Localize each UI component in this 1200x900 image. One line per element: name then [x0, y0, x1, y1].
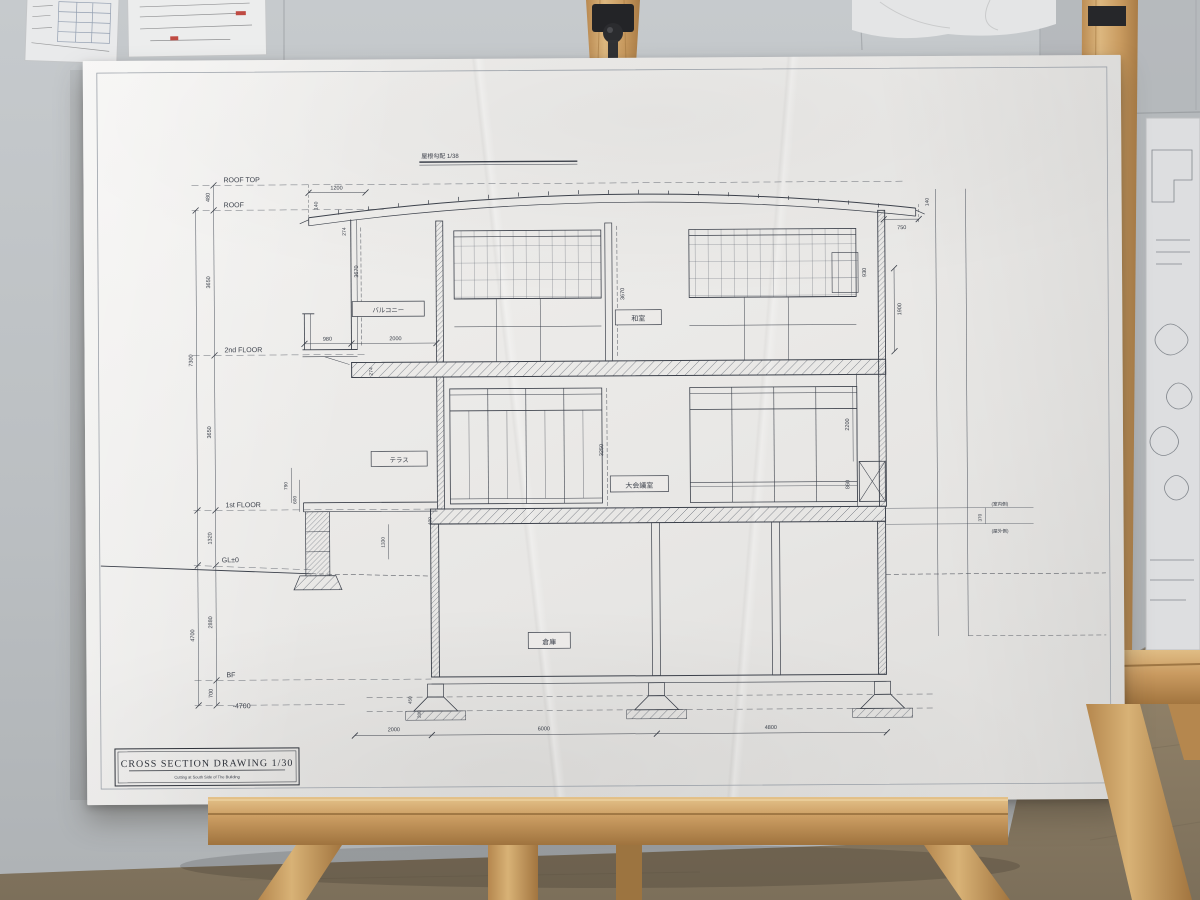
- dim-860: 860: [845, 480, 851, 489]
- dim-minus4700: -4700: [233, 703, 251, 710]
- title-block: CROSS SECTION DRAWING 1/30 Cutting at So…: [115, 748, 299, 786]
- roof-note-text: 屋根勾配 1/38: [421, 152, 459, 160]
- label-bf: BF: [226, 672, 235, 679]
- dim-370: 370: [978, 513, 983, 521]
- note-inner-side: (室内側): [991, 501, 1008, 508]
- dim-980: 980: [323, 337, 332, 343]
- drawing-title: CROSS SECTION DRAWING 1/30: [121, 758, 294, 770]
- dim-3250: 3250: [599, 444, 605, 456]
- bottom-dims: 2000 6000 4800: [352, 724, 890, 738]
- dim-480: 480: [206, 193, 212, 202]
- site-plan-sheet: [1146, 118, 1200, 650]
- slab-1fl: [430, 506, 885, 524]
- svg-text:倉庫: 倉庫: [542, 637, 556, 646]
- svg-text:バルコニー: バルコニー: [372, 306, 404, 314]
- svg-text:大会議室: 大会議室: [625, 481, 653, 490]
- drawing-subtitle: Cutting at South Side of The Building: [174, 774, 240, 779]
- dim-1200: 1200: [330, 186, 342, 192]
- dim-140-left: 140: [314, 201, 320, 210]
- label-2nd-floor: 2nd FLOOR: [224, 347, 262, 354]
- dim-700: 700: [209, 689, 215, 698]
- slab-2fl: 274: [352, 359, 886, 377]
- dim-140-right: 140: [925, 198, 931, 207]
- label-1st-floor: 1st FLOOR: [225, 502, 260, 509]
- label-gl: GL±0: [222, 557, 239, 564]
- dim-3670-a: 3670: [354, 265, 360, 277]
- easel-top-mast: [586, 0, 640, 64]
- dim-3650-b: 3650: [207, 426, 213, 438]
- dim-274-top: 274: [342, 227, 348, 236]
- dim-2000-balcony: 2000: [389, 336, 401, 342]
- level-labels: ROOF TOP ROOF 2nd FLOOR 1st FLOOR GL±0 B…: [219, 177, 264, 710]
- dim-750: 750: [897, 225, 906, 231]
- photo-of-drawing-board: { "title_block": { "title": "CROSS SECTI…: [0, 0, 1200, 900]
- label-roof: ROOF: [224, 202, 244, 209]
- dim-2000-bottom: 2000: [388, 727, 400, 733]
- sketch-paper-left-2: [127, 0, 266, 57]
- note-outer-side: (屋外側): [992, 528, 1009, 535]
- roof: [299, 181, 924, 228]
- presentation-board: 屋根勾配 1/38 ROOF TOP ROOF 2nd FLOOR 1st FL…: [83, 55, 1126, 805]
- dim-3670-b: 3670: [620, 288, 626, 300]
- label-roof-top: ROOF TOP: [223, 177, 260, 184]
- dim-4800: 4800: [765, 725, 777, 731]
- dim-600: 600: [292, 496, 298, 504]
- dim-6000: 6000: [538, 726, 550, 732]
- room-label-storage: 倉庫: [528, 632, 570, 648]
- dim-7300: 7300: [189, 354, 195, 366]
- sheet-border: [97, 67, 1111, 789]
- room-label-meeting: 大会議室: [610, 476, 668, 492]
- svg-text:テラス: テラス: [390, 456, 409, 464]
- dim-1900: 1900: [897, 303, 903, 315]
- dim-ticks-left: [192, 182, 219, 708]
- sketch-paper-left-1: [25, 0, 119, 64]
- room-label-balcony: バルコニー: [352, 301, 424, 316]
- ground-line: [101, 560, 1106, 641]
- footings: [406, 681, 913, 720]
- terrace-structure: [291, 467, 438, 590]
- dim-2880: 2880: [208, 616, 214, 628]
- dim-3650-a: 3650: [206, 276, 212, 288]
- dim-790: 790: [283, 482, 289, 490]
- cross-section-drawing: 屋根勾配 1/38 ROOF TOP ROOF 2nd FLOOR 1st FL…: [83, 55, 1126, 805]
- right-boundary: [884, 188, 1035, 636]
- roof-slope-note: 屋根勾配 1/38: [419, 151, 577, 165]
- dim-200: 200: [417, 710, 422, 718]
- dim-1320: 1320: [208, 532, 214, 544]
- dim-1330-group: 1330: [381, 524, 389, 559]
- dim-450: 450: [408, 696, 413, 704]
- dim-930: 930: [862, 268, 868, 277]
- dim-4700: 4700: [190, 629, 196, 641]
- svg-text:和室: 和室: [631, 314, 645, 323]
- dim-1330: 1330: [381, 537, 387, 548]
- room-label-terrace: テラス: [371, 451, 427, 466]
- dim-2200: 2200: [845, 418, 851, 430]
- room-label-washitsu: 和室: [615, 310, 661, 325]
- dim-274-slab: 274: [369, 367, 375, 376]
- left-dims: 480 3650 3650 1320 2880 700 7300 4700: [188, 193, 215, 698]
